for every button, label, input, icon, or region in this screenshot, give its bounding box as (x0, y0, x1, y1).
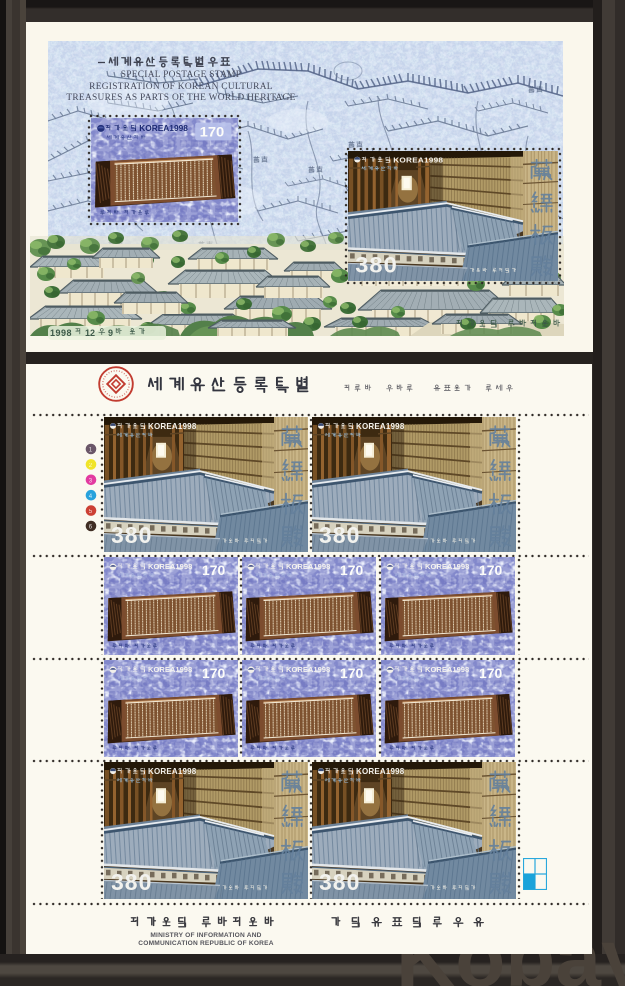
svg-text:12: 12 (85, 328, 95, 338)
svg-text:9: 9 (108, 328, 113, 338)
svg-text:1998: 1998 (50, 328, 72, 338)
